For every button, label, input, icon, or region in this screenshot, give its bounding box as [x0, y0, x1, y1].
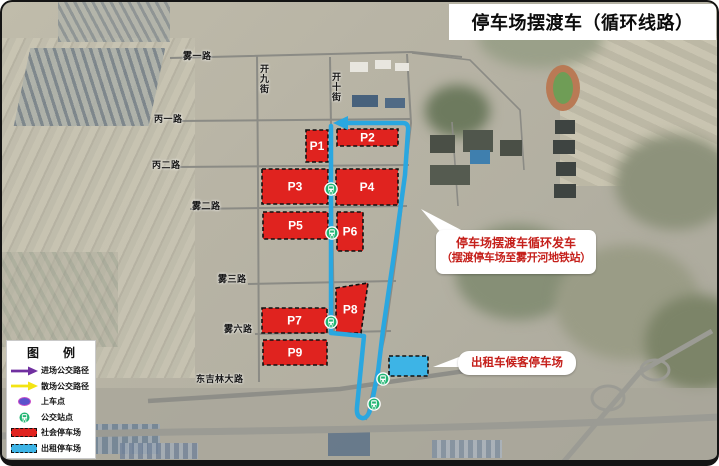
shuttle-loop-callout: 停车场摆渡车循环发车 （摆渡停车场至雾开河地铁站） — [436, 230, 596, 274]
legend-item: 出租停车场 — [7, 441, 95, 457]
legend-item-label: 散场公交路径 — [41, 381, 89, 392]
bus-stop-icon — [376, 372, 390, 386]
parking-lot-P1: P1 — [306, 130, 328, 162]
legend-item-label: 上车点 — [41, 396, 65, 407]
legend-item: 上车点 — [7, 394, 95, 410]
parking-lot-P5: P5 — [263, 212, 328, 239]
parking-lot-label: P5 — [288, 219, 303, 233]
callout-pointer — [433, 357, 459, 367]
bus-stop-icon — [324, 182, 338, 196]
map-title-box: 停车场摆渡车（循环线路） — [449, 4, 716, 40]
vegetation-patch — [615, 135, 719, 230]
parking-lot-label: P4 — [360, 180, 375, 194]
road-label-开九街: 开九街 — [258, 64, 271, 94]
social-parking-swatch — [7, 428, 41, 437]
greenhouse-rows — [58, 0, 170, 42]
taxi-callout-text: 出租车候客停车场 — [471, 357, 563, 369]
parking-lot-P2: P2 — [337, 129, 398, 146]
purple-arrow-icon — [7, 366, 41, 376]
parking-lot-P4: P4 — [336, 169, 398, 205]
parking-lot-label: P7 — [287, 314, 302, 328]
bus-stop-icon — [324, 315, 338, 329]
map-title: 停车场摆渡车（循环线路） — [472, 9, 694, 35]
parking-lot-P9: P9 — [263, 340, 327, 365]
parking-lot-P7: P7 — [262, 308, 327, 333]
road-label-雾三路: 雾三路 — [218, 272, 247, 285]
parking-lot-P6: P6 — [337, 212, 363, 251]
building-cluster — [328, 430, 370, 456]
shuttle-callout-line1: 停车场摆渡车循环发车 — [436, 235, 596, 251]
vegetation-patch — [425, 85, 490, 137]
route-direction-arrow — [333, 116, 348, 130]
parking-lot-label: P1 — [310, 139, 325, 153]
bus-stop-icon — [325, 226, 339, 240]
parking-lot-label: P8 — [343, 302, 358, 316]
legend-item: 散场公交路径 — [7, 379, 95, 395]
boarding-point-icon — [7, 397, 41, 406]
parking-lot-label: P9 — [288, 346, 303, 360]
parking-lot-label: P6 — [343, 225, 358, 239]
legend-panel: 图 例 进场公交路径散场公交路径上车点公交站点社会停车场出租停车场 — [6, 340, 96, 459]
yellow-arrow-icon — [7, 381, 41, 391]
legend-item-label: 社会停车场 — [41, 427, 81, 438]
map-canvas: P1P2P3P4P5P6P7P8P9 雾一路开九街开十街丙一路丙二路雾二路雾三路… — [0, 0, 719, 466]
road-label-雾六路: 雾六路 — [224, 322, 253, 335]
legend-item-label: 公交站点 — [41, 412, 73, 423]
taxi-parking-swatch — [7, 444, 41, 453]
field-texture — [0, 252, 118, 347]
legend-item: 进场公交路径 — [7, 363, 95, 379]
taxi-callout: 出租车候客停车场 — [458, 351, 576, 375]
parking-lot-taxi-lot — [389, 356, 428, 376]
greenhouse-rows — [14, 48, 166, 126]
building-cluster — [120, 443, 198, 459]
road-label-东吉林大路: 东吉林大路 — [196, 372, 244, 385]
legend-item: 公交站点 — [7, 410, 95, 426]
building-cluster — [432, 440, 502, 458]
shuttle-route-line — [331, 123, 408, 418]
legend-item: 社会停车场 — [7, 425, 95, 441]
parking-lot-label: P3 — [288, 180, 303, 194]
legend-item-label: 出租停车场 — [41, 443, 81, 454]
parking-lot-P3: P3 — [262, 169, 328, 204]
road-label-雾二路: 雾二路 — [192, 199, 221, 212]
legend-title: 图 例 — [7, 344, 95, 361]
legend-item-label: 进场公交路径 — [41, 365, 89, 376]
parking-lot-P8: P8 — [336, 283, 368, 333]
shuttle-callout-line2: （摆渡停车场至雾开河地铁站） — [436, 251, 596, 266]
road-label-开十街: 开十街 — [330, 72, 343, 102]
bus-stop-icon — [7, 411, 41, 424]
parking-lot-label: P2 — [360, 131, 375, 145]
